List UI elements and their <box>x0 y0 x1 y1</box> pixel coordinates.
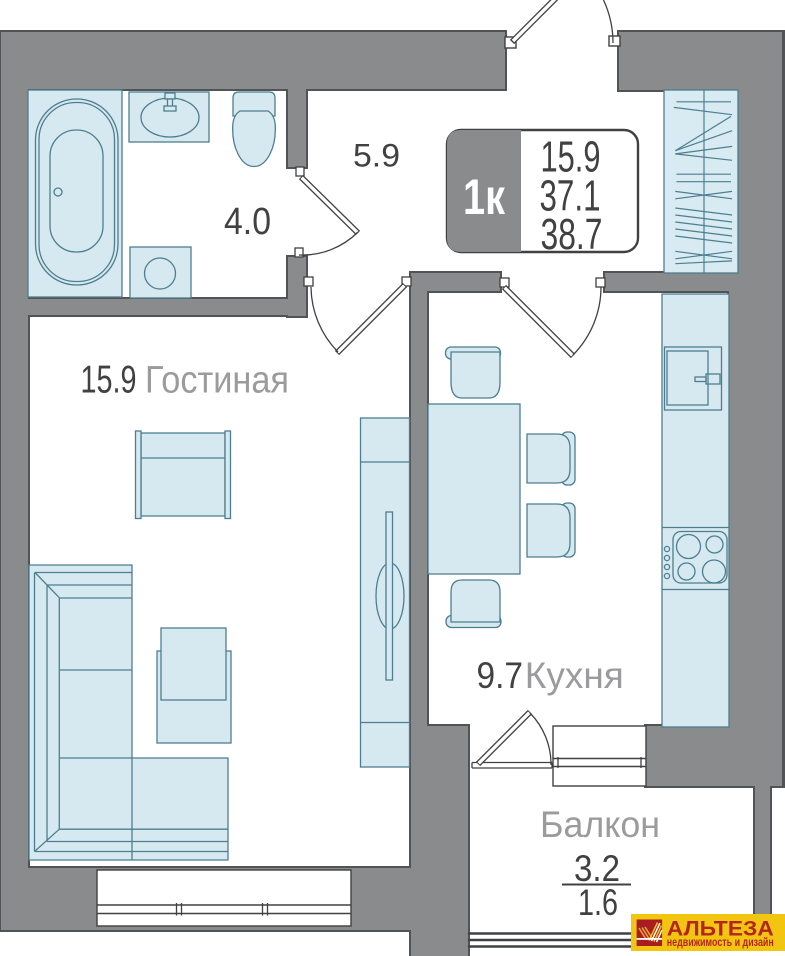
svg-text:1к: 1к <box>463 169 506 225</box>
svg-text:4.0: 4.0 <box>224 201 271 243</box>
svg-text:Гостиная: Гостиная <box>145 360 289 402</box>
svg-text:15.9: 15.9 <box>81 359 137 402</box>
svg-text:Балкон: Балкон <box>540 804 660 845</box>
svg-text:Кухня: Кухня <box>525 655 624 696</box>
svg-text:5.9: 5.9 <box>353 138 400 174</box>
svg-text:9.7: 9.7 <box>477 655 524 696</box>
svg-text:38.7: 38.7 <box>541 210 603 259</box>
svg-text:недвижимость и дизайн: недвижимость и дизайн <box>667 937 774 949</box>
svg-text:1.6: 1.6 <box>578 882 618 923</box>
